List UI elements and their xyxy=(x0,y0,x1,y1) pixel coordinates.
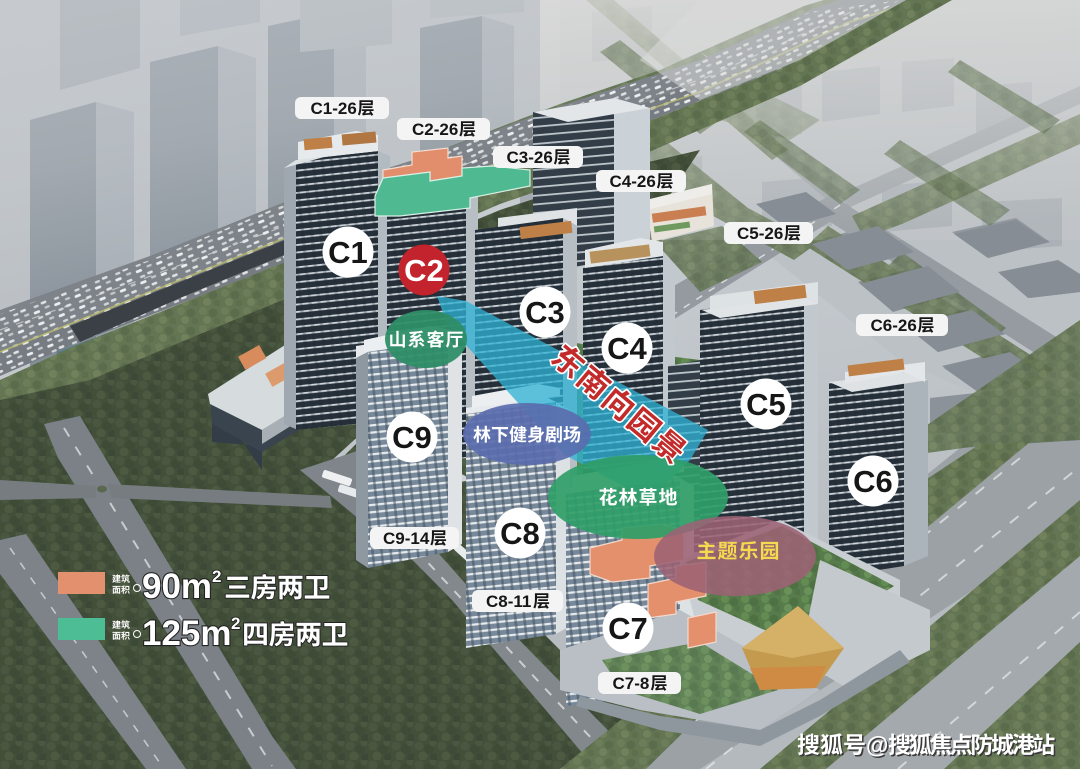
svg-text:C9-14: C9-14 xyxy=(383,529,430,548)
svg-text:C2-26: C2-26 xyxy=(412,120,458,139)
svg-text:C6-26: C6-26 xyxy=(871,316,917,335)
svg-text:C7-8: C7-8 xyxy=(613,674,650,693)
svg-text:C1: C1 xyxy=(328,235,368,270)
svg-text:C4: C4 xyxy=(607,331,647,366)
svg-text:C3: C3 xyxy=(525,295,565,330)
svg-text:C3-26: C3-26 xyxy=(507,148,553,167)
svg-text:C5: C5 xyxy=(746,387,786,422)
svg-text:C8: C8 xyxy=(500,516,540,551)
svg-text:C7: C7 xyxy=(608,611,648,646)
svg-text:C6: C6 xyxy=(853,464,893,499)
svg-text:90m: 90m xyxy=(142,567,212,606)
svg-text:@: @ xyxy=(866,732,888,758)
svg-text:C2: C2 xyxy=(404,253,444,288)
svg-text:C1-26: C1-26 xyxy=(311,99,357,118)
svg-text:C4-26: C4-26 xyxy=(610,172,656,191)
svg-text:125m: 125m xyxy=(142,614,232,653)
svg-text:C9: C9 xyxy=(392,420,432,455)
svg-text:2: 2 xyxy=(212,567,221,586)
svg-text:2: 2 xyxy=(231,614,240,633)
svg-text:C8-11: C8-11 xyxy=(486,592,531,611)
svg-text:C5-26: C5-26 xyxy=(737,224,783,243)
